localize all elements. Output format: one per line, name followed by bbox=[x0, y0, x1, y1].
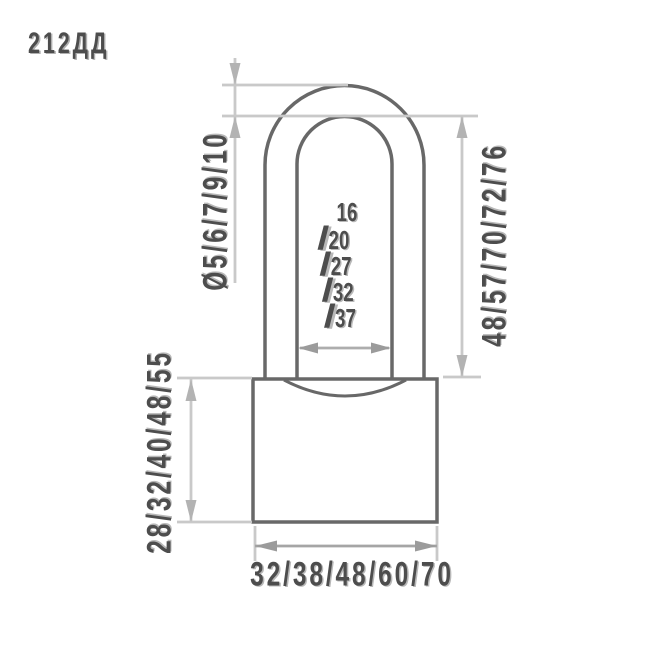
inner-width-line: /37 bbox=[320, 303, 357, 329]
drawing-canvas: 212ДД Ø5/6/7/9/10 48/57/70/72/76 28/32/4… bbox=[0, 0, 650, 650]
arrow-diameter-down bbox=[230, 63, 241, 85]
arrow-shackle-height-top bbox=[457, 116, 468, 138]
lock-body bbox=[253, 379, 437, 522]
arrow-body-width-right bbox=[415, 541, 437, 552]
slash-glyph: / bbox=[324, 303, 336, 329]
inner-width-value: 16 bbox=[337, 197, 358, 227]
arrow-shackle-height-bottom bbox=[457, 355, 468, 377]
dim-inner-width-label: 16 /20 /27 /32 /37 bbox=[320, 199, 357, 329]
arrow-inner-width-left bbox=[298, 343, 318, 354]
inner-width-value: 37 bbox=[335, 303, 356, 333]
arrow-body-width-left bbox=[255, 541, 277, 552]
arrow-inner-width-right bbox=[371, 343, 391, 354]
dim-shackle-height-label: 48/57/70/72/76 bbox=[476, 143, 515, 347]
dim-body-height-label: 28/32/40/48/55 bbox=[141, 350, 180, 554]
dim-body-width-label: 32/38/48/60/70 bbox=[250, 556, 454, 595]
arrow-body-height-top bbox=[186, 379, 197, 401]
arrow-body-height-bottom bbox=[186, 500, 197, 522]
dim-shackle-diameter-label: Ø5/6/7/9/10 bbox=[197, 131, 236, 291]
model-number: 212ДД bbox=[28, 27, 109, 61]
body-top-arc bbox=[284, 380, 406, 396]
